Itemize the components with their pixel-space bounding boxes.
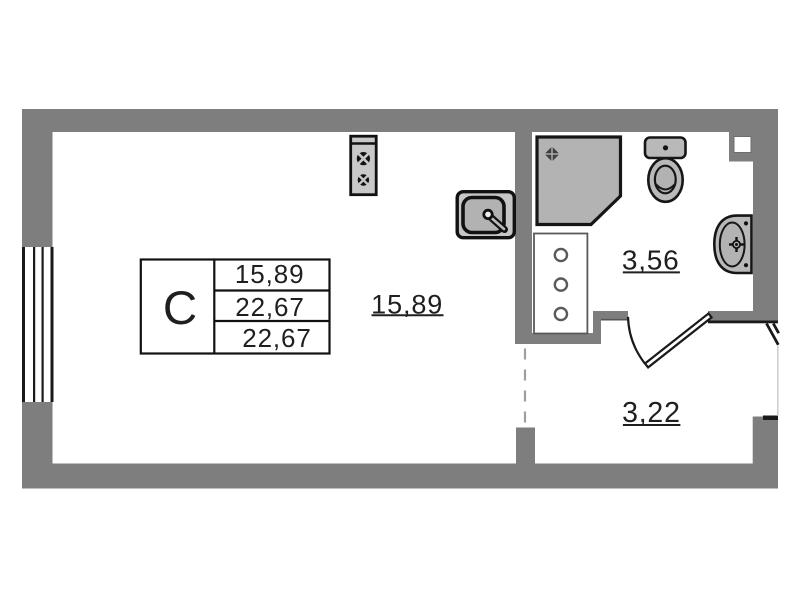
svg-text:22,67: 22,67	[242, 323, 312, 353]
svg-text:3,56: 3,56	[622, 245, 680, 276]
svg-text:15,89: 15,89	[235, 259, 305, 289]
svg-text:С: С	[163, 282, 197, 335]
svg-text:22,67: 22,67	[235, 292, 305, 322]
